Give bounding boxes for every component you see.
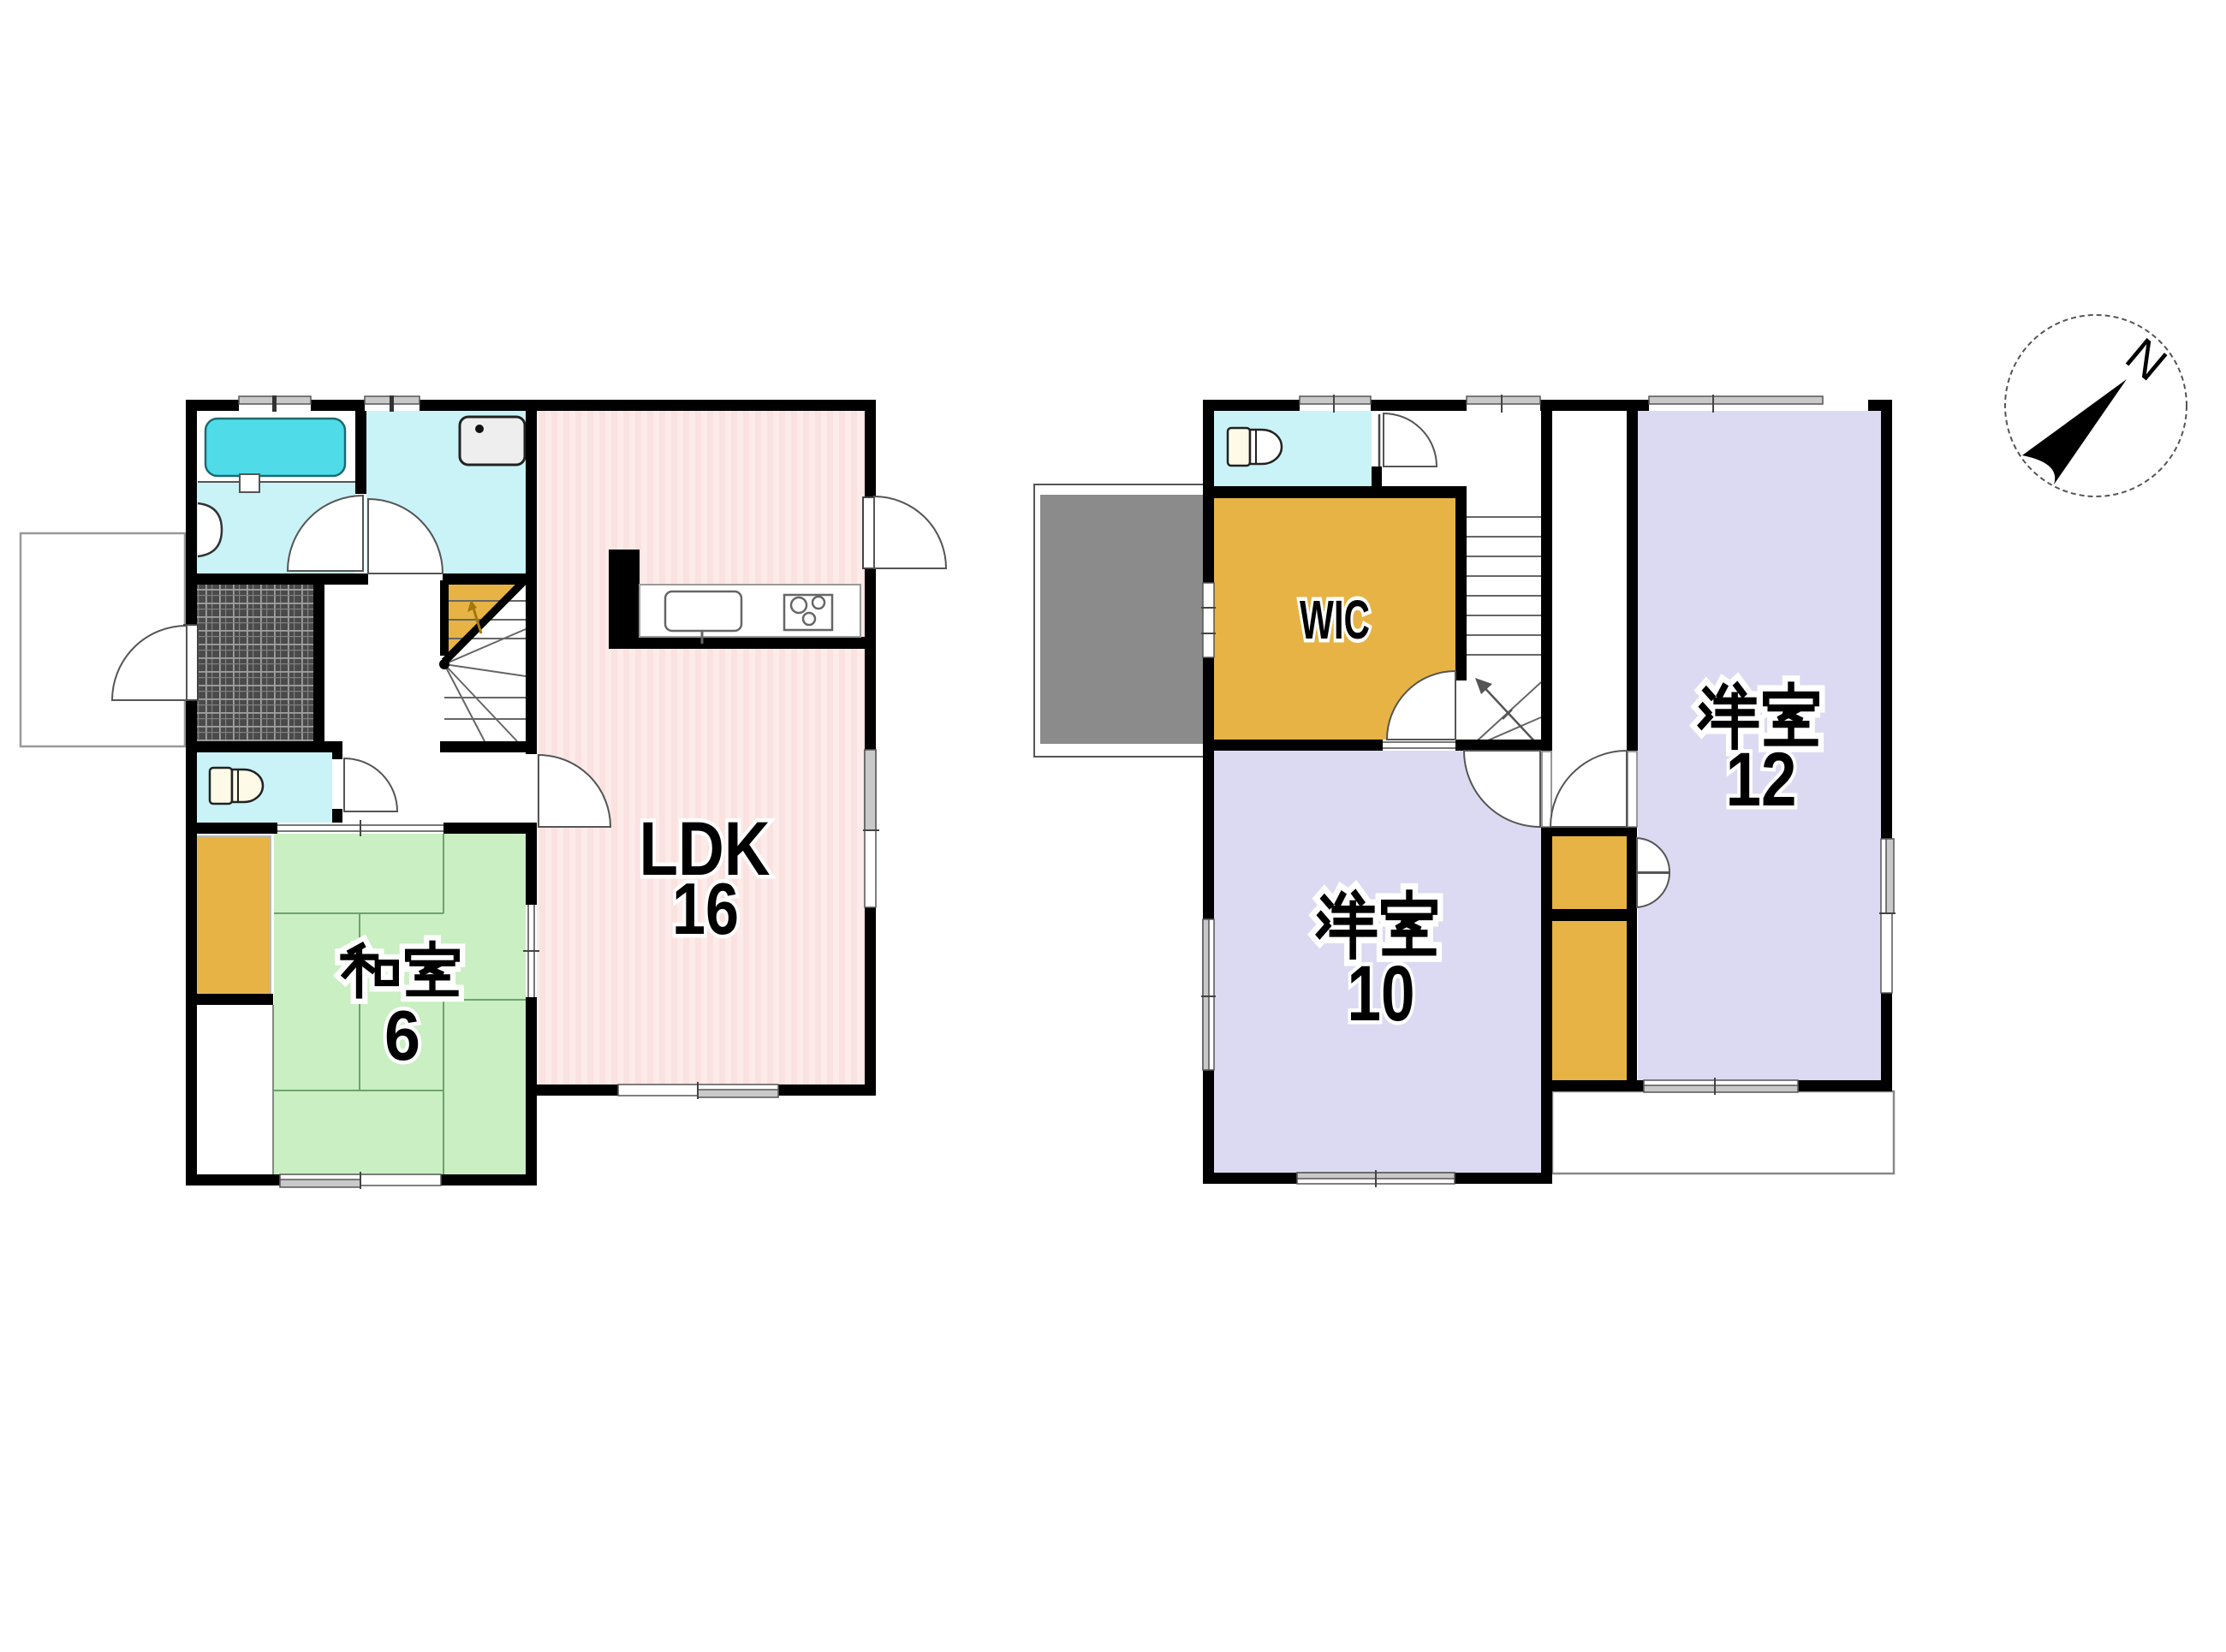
svg-text:16: 16 xyxy=(672,869,739,950)
svg-text:6: 6 xyxy=(384,995,420,1075)
svg-text:10: 10 xyxy=(1348,950,1415,1037)
svg-text:12: 12 xyxy=(1726,736,1797,822)
svg-text:WIC: WIC xyxy=(1300,589,1370,651)
